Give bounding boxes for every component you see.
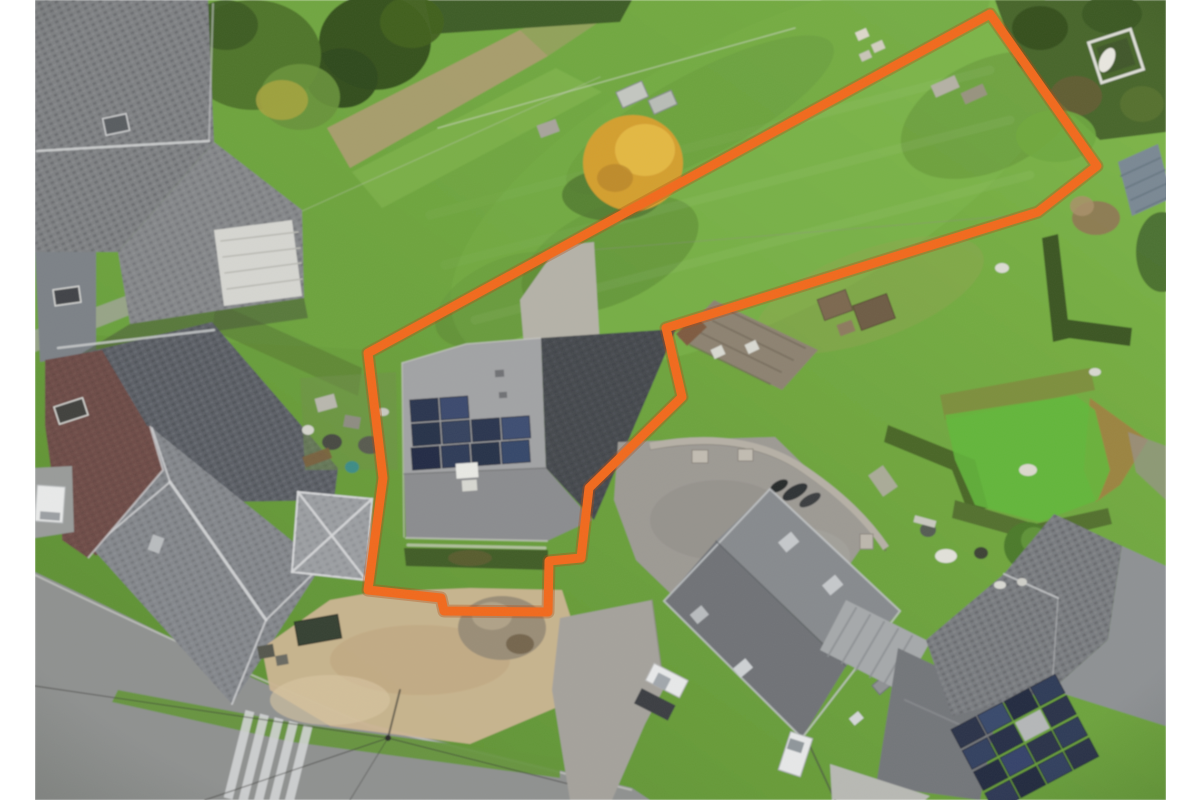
frame-overlay	[0, 0, 1200, 800]
aerial-photo-viewport	[0, 0, 1200, 800]
pillarbox-bar-left	[0, 0, 35, 800]
aerial-photo	[0, 0, 1200, 800]
pillarbox-bar-right	[1166, 0, 1200, 800]
photo-grain	[35, 0, 1166, 800]
